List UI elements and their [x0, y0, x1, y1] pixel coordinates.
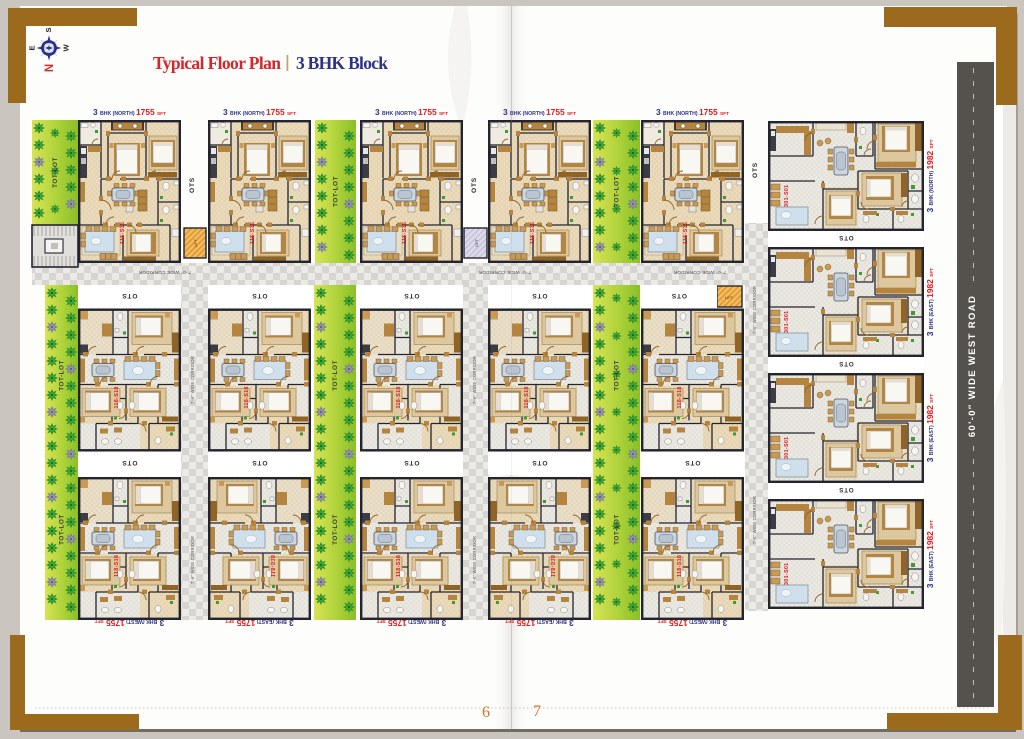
svg-text:OTS: OTS [471, 177, 478, 193]
svg-text:TOT-LOT: TOT-LOT [333, 176, 340, 207]
svg-text:OTS: OTS [532, 459, 548, 466]
svg-text:TOT-LOT: TOT-LOT [59, 514, 66, 545]
svg-text:60'-0″ WIDE WEST ROAD: 60'-0″ WIDE WEST ROAD [967, 295, 978, 437]
svg-text:OTS: OTS [752, 162, 759, 178]
svg-text:OTS: OTS [838, 234, 853, 241]
svg-text:7'-0″ WIDE CORRIDOR: 7'-0″ WIDE CORRIDOR [478, 270, 531, 275]
svg-text:7'-6″ WIDE CORRIDOR: 7'-6″ WIDE CORRIDOR [472, 356, 477, 404]
svg-text:N: N [44, 64, 56, 72]
svg-text:7: 7 [533, 703, 541, 720]
svg-text:OTS: OTS [671, 292, 687, 299]
svg-text:7'-6″ WIDE CORRIDOR: 7'-6″ WIDE CORRIDOR [190, 536, 195, 584]
svg-text:LIFT: LIFT [725, 295, 734, 300]
svg-text:S: S [44, 27, 53, 32]
svg-text:7'-6″ WIDE CORRIDOR: 7'-6″ WIDE CORRIDOR [752, 496, 757, 544]
svg-text:TOT-LOT: TOT-LOT [332, 360, 339, 391]
svg-text:7'-6″ WIDE CORRIDOR: 7'-6″ WIDE CORRIDOR [190, 356, 195, 404]
svg-text:E: E [28, 45, 37, 50]
svg-text:OTS: OTS [252, 292, 268, 299]
svg-text:OTS: OTS [532, 292, 548, 299]
svg-text:7'-0″ WIDE CORRIDOR: 7'-0″ WIDE CORRIDOR [673, 270, 726, 275]
svg-text:6: 6 [482, 704, 490, 721]
svg-text:OTS: OTS [252, 459, 268, 466]
svg-text:TOT-LOT: TOT-LOT [52, 157, 59, 188]
svg-text:TOT-LOT: TOT-LOT [59, 360, 66, 391]
svg-text:7'-6″ WIDE CORRIDOR: 7'-6″ WIDE CORRIDOR [472, 536, 477, 584]
svg-text:Typical Floor Plan: Typical Floor Plan [153, 53, 281, 73]
svg-text:OTS: OTS [685, 459, 701, 466]
svg-text:TOT-LOT: TOT-LOT [614, 514, 621, 545]
svg-text:7'-0″ WIDE CORRIDOR: 7'-0″ WIDE CORRIDOR [138, 270, 191, 275]
svg-text:LIFT: LIFT [474, 238, 479, 247]
svg-text:OTS: OTS [404, 292, 420, 299]
svg-text:TOT-LOT: TOT-LOT [614, 176, 621, 207]
svg-text:OTS: OTS [189, 177, 196, 193]
svg-text:W: W [62, 44, 71, 52]
svg-text:OTS: OTS [122, 292, 138, 299]
svg-text:TOT-LOT: TOT-LOT [332, 514, 339, 545]
svg-text:7'-6″ WIDE CORRIDOR: 7'-6″ WIDE CORRIDOR [752, 286, 757, 334]
svg-text:OTS: OTS [838, 360, 853, 367]
svg-text:3 BHK Block: 3 BHK Block [296, 53, 388, 73]
svg-text:OTS: OTS [404, 459, 420, 466]
svg-text:LIFT: LIFT [193, 238, 198, 247]
svg-text:TOT-LOT: TOT-LOT [614, 360, 621, 391]
svg-text:OTS: OTS [122, 459, 138, 466]
svg-text:OTS: OTS [838, 486, 853, 493]
